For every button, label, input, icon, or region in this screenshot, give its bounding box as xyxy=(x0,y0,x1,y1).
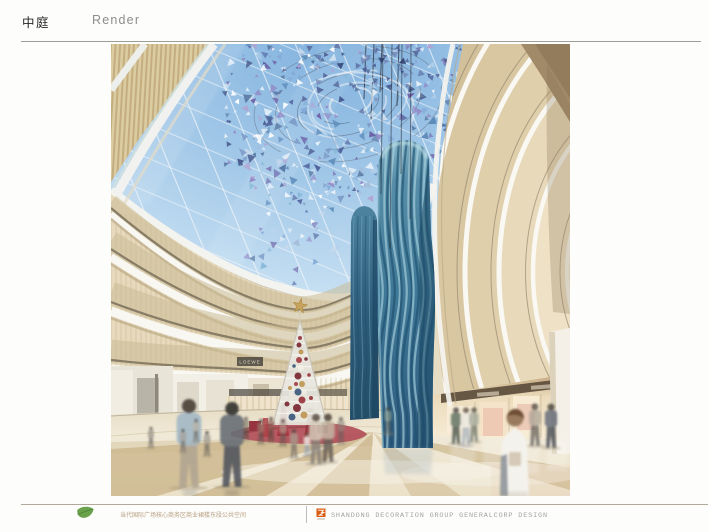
svg-text:LOEWE: LOEWE xyxy=(239,360,260,365)
